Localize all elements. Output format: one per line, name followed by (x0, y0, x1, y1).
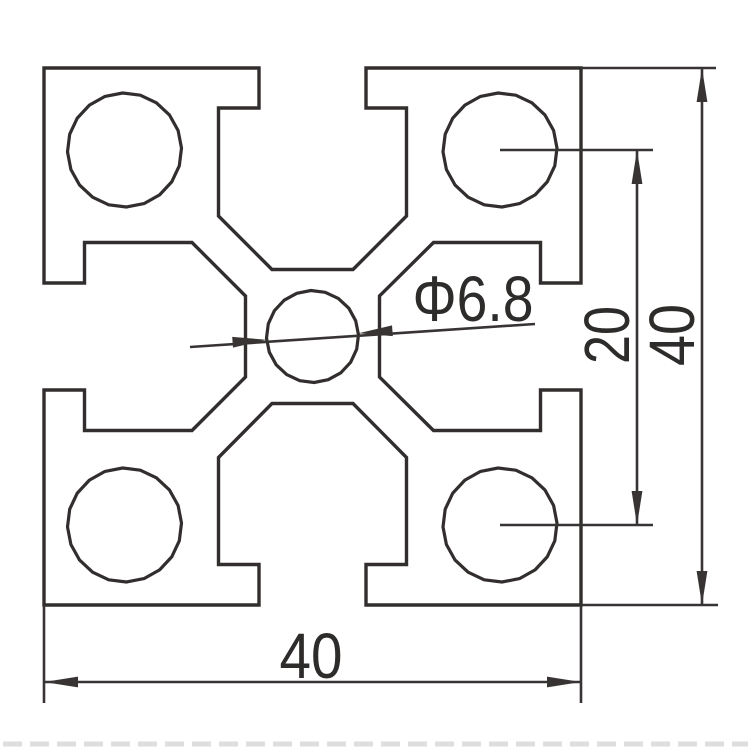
dim-center-hole-label: Φ6.8 (413, 263, 534, 335)
corner-hole-top-left (68, 93, 182, 207)
dim-line-bottom-width-arrowhead-2 (547, 677, 581, 688)
dim-hole-spacing-label: 20 (571, 306, 643, 364)
corner-hole-bottom-left (68, 468, 182, 582)
dim-right-height-label: 40 (636, 304, 708, 366)
drawing-canvas: 40 40 20 Φ6.8 (0, 0, 750, 750)
dim-bottom-width-label: 40 (280, 620, 343, 692)
dimension-group (44, 68, 718, 703)
dim-line-hole-spacing-arrowhead-2 (632, 491, 643, 525)
dim-line-hole-spacing-arrowhead-1 (632, 150, 643, 184)
dim-line-bottom-width-arrowhead-1 (44, 677, 78, 688)
dim-line-right-height-arrowhead-1 (697, 68, 708, 102)
dim-line-right-height-arrowhead-2 (697, 571, 708, 605)
drawing-svg: 40 40 20 Φ6.8 (0, 0, 750, 750)
label-group: 40 40 20 Φ6.8 (280, 263, 709, 692)
